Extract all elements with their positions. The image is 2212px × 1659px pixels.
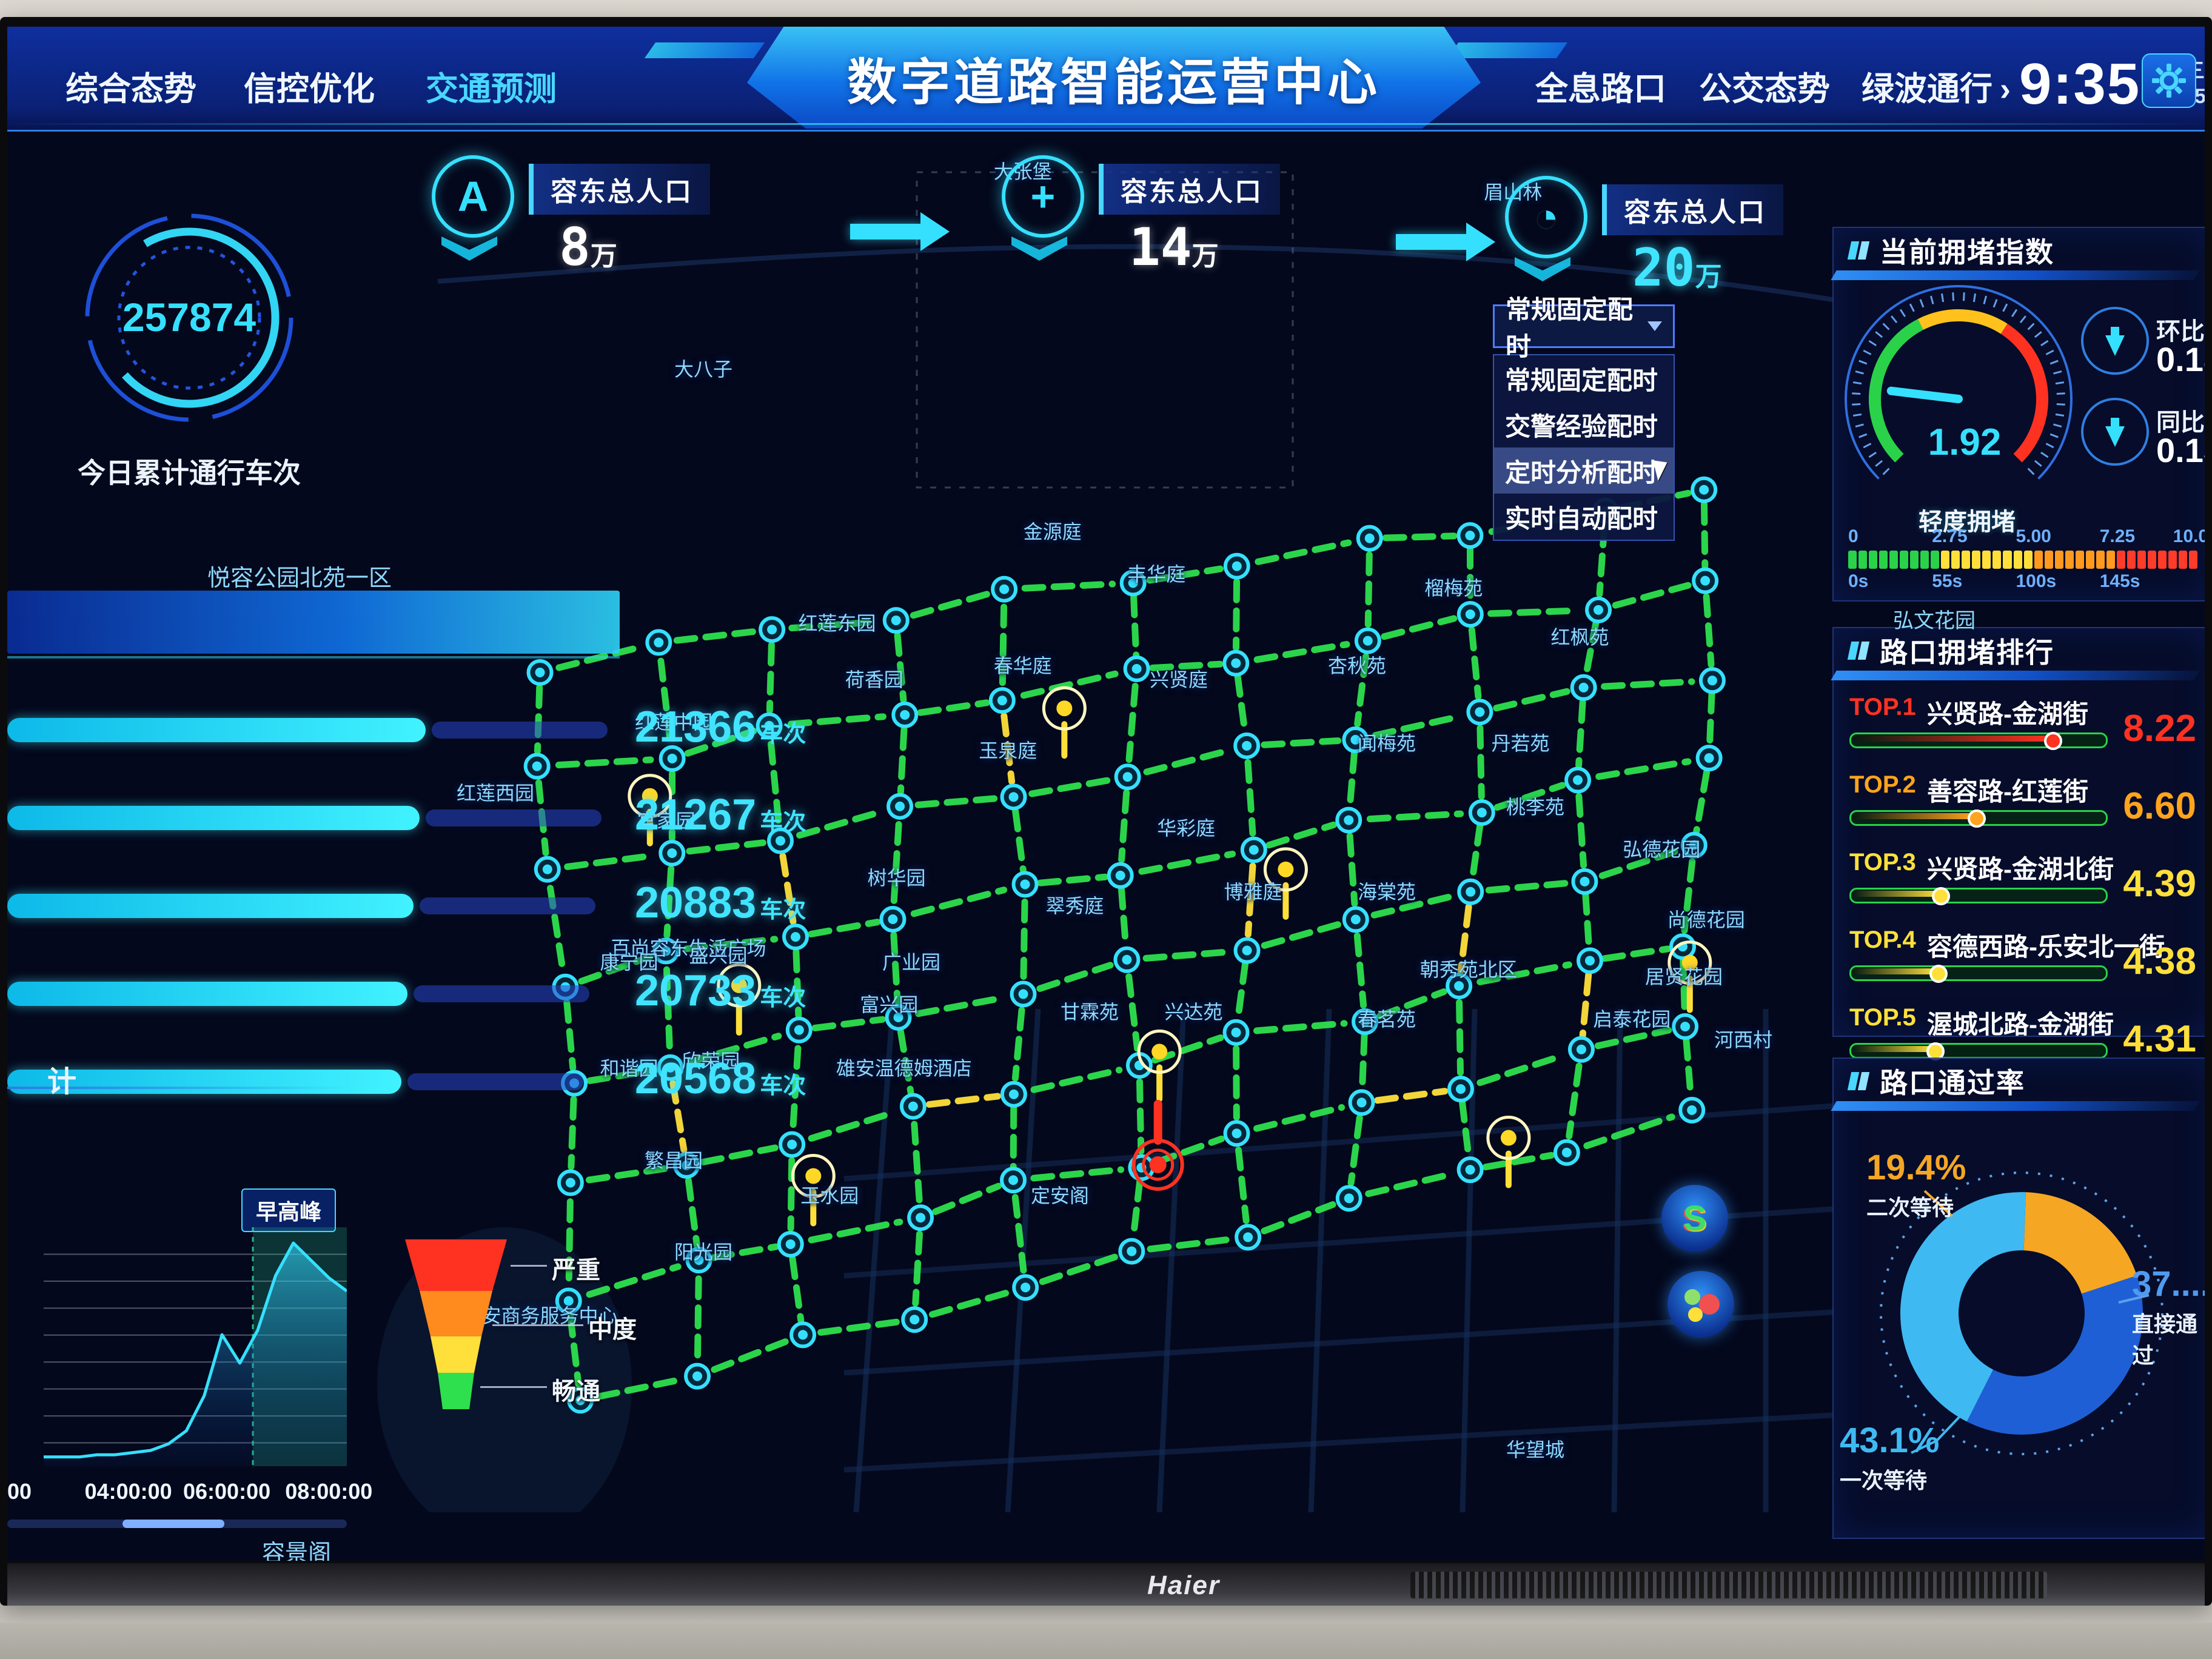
scale-cell	[2168, 551, 2177, 569]
timing-select[interactable]: 常规固定配时	[1493, 304, 1675, 348]
tv-bottom-bezel: Haier	[7, 1563, 2205, 1606]
speaker-grille	[1410, 1572, 2047, 1598]
scale-cell	[2034, 551, 2043, 569]
scale-tick-label: 0	[1848, 526, 1858, 547]
scale-cell	[2014, 551, 2022, 569]
congestion-scale: 02.755.007.2510.0 0s55s100s145s	[1848, 526, 2197, 593]
flow-arrow-icon	[850, 224, 923, 240]
badge-label: 容东总人口	[1602, 184, 1783, 235]
flow-bar	[7, 982, 407, 1006]
panel-icon	[1849, 240, 1870, 261]
ranking-row[interactable]: TOP.2善容路-红莲街6.60	[1849, 771, 2196, 843]
settings-button[interactable]	[2142, 53, 2196, 108]
badge-label: 容东总人口	[529, 164, 710, 215]
flow-bar	[7, 718, 426, 742]
timing-selected-value: 常规固定配时	[1506, 289, 1641, 363]
scale-time-label: 145s	[2100, 571, 2140, 592]
rank-tag: TOP.2	[1849, 771, 1916, 799]
rank-slider-fill	[1852, 736, 2051, 742]
x-axis-tick: 06:00:00	[183, 1479, 270, 1504]
legend-line	[511, 1265, 547, 1267]
flow-bar-tail	[414, 985, 589, 1002]
timing-option[interactable]: 交警经验配时	[1494, 401, 1674, 447]
flow-trend-chart	[44, 1227, 347, 1470]
rank-tag: TOP.1	[1849, 694, 1916, 721]
flow-bar-tail	[432, 722, 608, 739]
s-route-icon: S	[1683, 1198, 1707, 1239]
medical-cross-icon: +	[996, 152, 1087, 273]
scale-cell	[2137, 551, 2146, 569]
status-cluster-button[interactable]	[1667, 1271, 1734, 1338]
yoy-value: 0.13	[2156, 431, 2205, 470]
map-label-rongjingge: 容景阁	[262, 1534, 331, 1561]
time-scrollbar[interactable]	[7, 1520, 347, 1528]
congestion-gauge: 1.92	[1837, 280, 2080, 498]
flow-arrow-icon	[1396, 234, 1469, 250]
chevron-right-icon: ›	[2000, 70, 2011, 108]
scale-cell	[1879, 551, 1888, 569]
signal-timing-dropdown: 常规固定配时 常规固定配时交警经验配时定时分析配时实时自动配时	[1493, 304, 1675, 541]
flow-bar-row: 20733车次	[7, 959, 886, 1031]
clock-time: 9:35	[2019, 51, 2140, 118]
scale-tick-label: 2.75	[1932, 526, 1967, 547]
legend-label-clear: 畅通	[552, 1372, 600, 1407]
rank-slider-dot	[1932, 887, 1950, 905]
badge-value: 20万	[1632, 238, 1722, 298]
tab-green-wave[interactable]: 绿波通行›	[1862, 62, 2011, 110]
rank-slider	[1849, 1043, 2108, 1059]
gear-icon	[2152, 64, 2186, 98]
scale-cell	[2179, 551, 2187, 569]
slice-label-direct-pass: 37.... 直接通过	[2132, 1264, 2205, 1370]
timing-option[interactable]: 实时自动配时	[1494, 494, 1674, 540]
tab-overall-situation[interactable]: 综合态势	[65, 62, 196, 110]
badge-value: 14万	[1129, 217, 1219, 278]
svg-text:257874: 257874	[122, 295, 256, 340]
scale-cell	[1889, 551, 1898, 569]
rank-tag: TOP.5	[1849, 1004, 1916, 1031]
tv-frame: 大八子大张堡眉山林金源庭丰华庭榴梅苑红枫苑红莲东园荷香园春华庭兴贤庭杏秋苑红莲中…	[0, 17, 2212, 1606]
rank-intersection-name: 兴贤路-金湖街	[1927, 694, 2088, 731]
ranking-row[interactable]: TOP.4容德西路-乐安北一街4.38	[1849, 927, 2196, 998]
scale-cell	[1982, 551, 1991, 569]
flow-rank-highlight-row[interactable]	[7, 591, 620, 654]
ranking-row[interactable]: TOP.1兴贤路-金湖街8.22	[1849, 694, 2196, 765]
rank-slider-fill	[1852, 1046, 1934, 1052]
rank-slider	[1849, 732, 2108, 748]
scale-cell	[2086, 551, 2094, 569]
yellow-dot-icon	[1688, 1307, 1703, 1322]
scale-cell	[2003, 551, 2011, 569]
scale-cell	[2117, 551, 2125, 569]
flow-bar	[7, 894, 414, 918]
panel-title: 路口通过率	[1880, 1061, 2025, 1101]
scale-cell	[1858, 551, 1867, 569]
scale-cells	[1848, 551, 2197, 569]
congestion-legend: 严重 中度 畅通	[401, 1233, 741, 1427]
flow-bar-value: 20733车次	[635, 966, 806, 1016]
legend-label-medium: 中度	[588, 1310, 637, 1345]
rank-value: 4.38	[2123, 940, 2196, 983]
scale-cell	[2024, 551, 2033, 569]
photo-stage: 大八子大张堡眉山林金源庭丰华庭榴梅苑红枫苑红莲东园荷香园春华庭兴贤庭杏秋苑红莲中…	[0, 0, 2212, 1659]
flow-bar-row: 21366车次	[7, 695, 886, 768]
wall-shelf	[0, 1623, 2212, 1659]
flow-bar-value: 20568车次	[635, 1054, 806, 1104]
legend-label-severe: 严重	[552, 1250, 600, 1285]
tab-bus-situation[interactable]: 公交态势	[1699, 62, 1830, 110]
scale-cell	[1931, 551, 1939, 569]
scale-tick-label: 7.25	[2100, 526, 2135, 547]
scale-cell	[2189, 551, 2197, 569]
scale-cell	[2106, 551, 2115, 569]
scale-cell	[1992, 551, 2001, 569]
badge-label: 容东总人口	[1099, 164, 1280, 215]
s-route-button[interactable]: S	[1661, 1185, 1728, 1252]
rank-intersection-name: 善容路-红莲街	[1927, 771, 2088, 808]
timing-menu: 常规固定配时交警经验配时定时分析配时实时自动配时	[1493, 354, 1675, 541]
a-badge-icon: A	[432, 155, 514, 238]
population-badge: +容东总人口14万	[996, 152, 1456, 309]
svg-text:1.92: 1.92	[1928, 421, 2002, 463]
badge-value: 8万	[559, 217, 617, 278]
scale-cell	[2065, 551, 2074, 569]
yoy-stat-circle	[2081, 398, 2149, 466]
gauge-icon: ◔	[1505, 176, 1587, 258]
rank-slider-fill	[1852, 891, 1939, 897]
flow-bar-tail	[426, 809, 602, 826]
mouse-cursor-icon	[1653, 457, 1671, 481]
panel-title: 路口拥堵排行	[1880, 631, 2054, 671]
scale-time-label: 55s	[1932, 571, 1962, 592]
scale-cell	[1848, 551, 1857, 569]
rank-slider	[1849, 888, 2108, 903]
scale-cell	[1910, 551, 1919, 569]
header-accent	[645, 42, 765, 58]
rank-slider	[1849, 810, 2108, 826]
scale-time-label: 0s	[1848, 571, 1868, 592]
scale-cell	[2127, 551, 2136, 569]
donut-slice	[2024, 1192, 2137, 1293]
rank-slider-dot	[1968, 809, 1986, 828]
rank-tag: TOP.3	[1849, 849, 1916, 876]
scale-cell	[1951, 551, 1960, 569]
scale-cell	[2045, 551, 2053, 569]
scale-cell	[1941, 551, 1949, 569]
scale-cell	[1869, 551, 1877, 569]
scale-cell	[2096, 551, 2105, 569]
flow-trend-x-axis: 0004:00:0006:00:0008:00:00	[7, 1479, 359, 1507]
timing-option[interactable]: 定时分析配时	[1494, 447, 1674, 494]
panel-icon	[1849, 640, 1870, 661]
top-header: 综合态势 信控优化 交通预测 数字道路智能运营中心 全息路口 公交态势 绿波通行…	[7, 27, 2205, 132]
rank-slider-dot	[2044, 732, 2062, 750]
dashboard-screen: 大八子大张堡眉山林金源庭丰华庭榴梅苑红枫苑红莲东园荷香园春华庭兴贤庭杏秋苑红莲中…	[7, 27, 2205, 1561]
scale-cell	[2076, 551, 2084, 569]
tab-traffic-forecast[interactable]: 交通预测	[426, 62, 557, 110]
legend-line	[480, 1386, 547, 1388]
scale-cell	[1962, 551, 1970, 569]
daily-traffic-gauge: 257874	[68, 203, 310, 445]
panel-icon	[1849, 1071, 1870, 1091]
green-dot-icon	[1684, 1289, 1700, 1305]
flow-bar-row: 20568车次	[7, 1047, 886, 1119]
rank-intersection-name: 渥城北路-金湖街	[1927, 1004, 2114, 1041]
morning-peak-tag: 早高峰	[241, 1188, 336, 1232]
title-banner: 数字道路智能运营中心	[747, 27, 1481, 129]
donut-slice	[1967, 1276, 2143, 1435]
x-axis-tick: 00	[7, 1479, 32, 1504]
page-title: 数字道路智能运营中心	[847, 42, 1381, 114]
scale-top-labels: 02.755.007.2510.0	[1848, 526, 2197, 548]
rank-slider-dot	[1929, 965, 1948, 983]
panel-congestion-ranking: 路口拥堵排行 TOP.1兴贤路-金湖街8.22TOP.2善容路-红莲街6.60T…	[1832, 627, 2205, 1037]
badge-shield-icon	[1515, 257, 1570, 281]
population-badge: A容东总人口8万	[426, 152, 886, 309]
flow-bar-row: 21267车次	[7, 783, 886, 856]
brand-logo: Haier	[1147, 1570, 1220, 1601]
section-title-partial: 计	[47, 1057, 76, 1100]
mom-value: 0.18	[2156, 340, 2205, 379]
scale-bottom-labels: 0s55s100s145s	[1848, 571, 2197, 593]
map-label-region: 悦容公园北苑一区	[207, 559, 392, 592]
map-place-label: 弘文花园	[1893, 604, 1976, 634]
badge-shield-icon	[1011, 236, 1067, 261]
tab-holographic-intersection[interactable]: 全息路口	[1535, 62, 1666, 110]
rank-value: 6.60	[2123, 785, 2196, 828]
rank-slider	[1849, 965, 2108, 981]
panel-congestion-index: 当前拥堵指数 1.92 环比 0.18 同比 0.13 轻度拥堵 02.755.…	[1832, 227, 2205, 602]
legend-line	[492, 1324, 583, 1326]
rank-slider-fill	[1852, 813, 1975, 819]
down-arrow-icon	[2105, 335, 2125, 356]
scale-cell	[2055, 551, 2063, 569]
rank-intersection-name: 兴贤路-金湖北街	[1927, 849, 2114, 886]
rank-value: 4.31	[2123, 1017, 2196, 1061]
x-axis-tick: 08:00:00	[285, 1479, 372, 1504]
medical-cross-icon: +	[1002, 155, 1084, 238]
flow-bar-tail	[420, 897, 595, 914]
timing-option[interactable]: 常规固定配时	[1494, 355, 1674, 401]
flow-bar-tail	[407, 1073, 583, 1090]
ranking-row[interactable]: TOP.3兴贤路-金湖北街4.39	[1849, 849, 2196, 920]
badge-shield-icon	[441, 236, 497, 261]
pass-rate-donut: 19.4% 二次等待 37.... 直接通过 43.1% 一次等待	[1834, 1113, 2205, 1513]
flow-bar-value: 21366车次	[635, 702, 806, 752]
scale-cell	[1920, 551, 1929, 569]
scale-cell	[2148, 551, 2156, 569]
mom-stat-circle	[2081, 307, 2149, 375]
gauge-icon: ◔	[1499, 172, 1590, 293]
header-accent	[1447, 42, 1567, 58]
flow-bar-value: 21267车次	[635, 790, 806, 840]
panel-pass-rate: 路口通过率 19.4% 二次等待 37.... 直接通过 43.1% 一次等待	[1832, 1057, 2205, 1539]
slice-label-first-wait: 43.1% 一次等待	[1840, 1420, 1939, 1495]
flow-bar-row: 20883车次	[7, 871, 886, 943]
flow-bar	[7, 806, 420, 830]
rank-value: 4.39	[2123, 862, 2196, 905]
scale-cell	[1972, 551, 1980, 569]
x-axis-tick: 04:00:00	[85, 1479, 172, 1504]
chevron-down-icon	[1647, 321, 1662, 331]
rank-slider-fill	[1852, 968, 1937, 974]
rank-value: 8.22	[2123, 707, 2196, 750]
scale-cell	[1900, 551, 1908, 569]
scrollbar-thumb[interactable]	[122, 1520, 224, 1528]
panel-title: 当前拥堵指数	[1880, 230, 2054, 270]
scale-tick-label: 10.0	[2173, 526, 2205, 547]
tab-signal-optimization[interactable]: 信控优化	[244, 62, 375, 110]
scale-time-label: 100s	[2016, 571, 2056, 592]
flow-bar-value: 20883车次	[635, 878, 806, 928]
daily-traffic-label: 今日累计通行车次	[44, 451, 335, 491]
a-badge-icon: A	[426, 152, 517, 273]
rank-tag: TOP.4	[1849, 927, 1916, 954]
slice-label-second-wait: 19.4% 二次等待	[1866, 1147, 1966, 1222]
down-arrow-icon	[2105, 426, 2125, 447]
scale-tick-label: 5.00	[2016, 526, 2051, 547]
scale-cell	[2158, 551, 2167, 569]
